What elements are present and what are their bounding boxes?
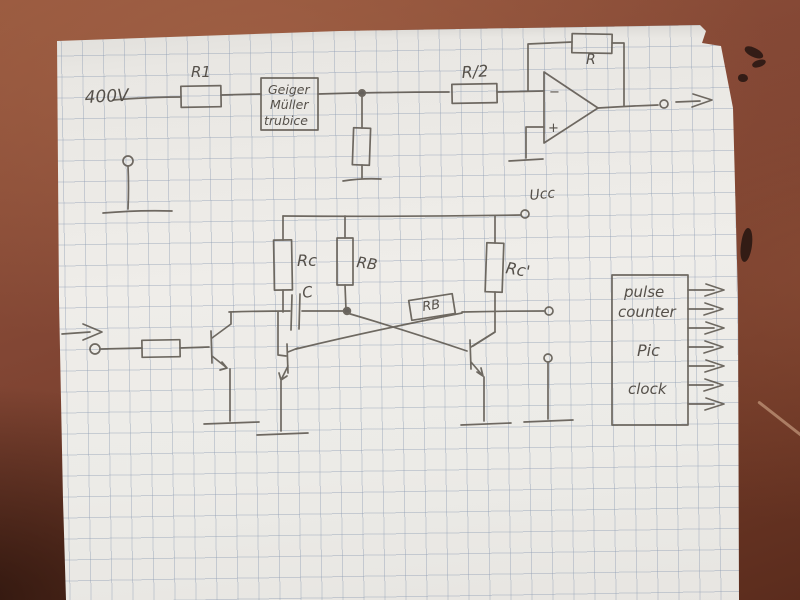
transistor-t2 bbox=[279, 344, 298, 380]
wire bbox=[278, 312, 286, 356]
terminal-circle bbox=[660, 100, 668, 108]
wire bbox=[497, 91, 544, 92]
photo-of-schematic: { "photo": { "table_color": "#7d4230", "… bbox=[0, 0, 800, 600]
counter-output-arrows bbox=[688, 284, 724, 410]
terminal-circle bbox=[521, 210, 529, 218]
resistor-rb-mid bbox=[337, 238, 353, 285]
wire bbox=[180, 347, 209, 348]
wire-ucc-rail bbox=[283, 215, 521, 216]
wire-cross-2 bbox=[296, 313, 462, 349]
transistor-t1 bbox=[211, 312, 231, 370]
wire-cross-1 bbox=[347, 313, 467, 351]
label-counter-3: Pic bbox=[637, 341, 660, 360]
wire-output-rail bbox=[462, 311, 544, 312]
label-counter-1: pulse bbox=[623, 283, 664, 301]
label-geiger-2: Müller bbox=[270, 97, 309, 112]
label-geiger-1: Geiger bbox=[268, 82, 310, 97]
terminal-circle bbox=[90, 344, 100, 354]
label-rc-right: Rc' bbox=[504, 258, 531, 281]
terminal-circle bbox=[544, 354, 552, 362]
label-rc-left: Rc bbox=[297, 251, 317, 270]
wire bbox=[318, 92, 449, 94]
wire-feedback bbox=[612, 43, 624, 106]
resistor-input bbox=[142, 340, 180, 358]
label-rb-coupling: RB bbox=[421, 297, 441, 315]
ground-symbol bbox=[204, 422, 259, 424]
wire bbox=[345, 285, 346, 310]
ground-symbol bbox=[257, 433, 308, 435]
wire-collector-rail bbox=[229, 311, 290, 312]
wire bbox=[101, 348, 142, 349]
label-r-half: R/2 bbox=[461, 61, 489, 82]
ground-symbol bbox=[524, 420, 573, 422]
opamp-plus-sign: + bbox=[548, 121, 559, 136]
ground-symbol bbox=[461, 423, 511, 425]
label-geiger-3: trubice bbox=[264, 113, 308, 128]
wire bbox=[221, 94, 261, 95]
label-counter-2: counter bbox=[618, 303, 677, 321]
capacitor-plates bbox=[291, 294, 300, 330]
label-r1: R1 bbox=[191, 63, 211, 81]
opamp-minus-sign: − bbox=[549, 85, 560, 100]
resistor-feedback bbox=[572, 34, 612, 54]
input-arrow bbox=[62, 324, 102, 340]
label-cap: C bbox=[301, 283, 314, 302]
resistor-divider bbox=[352, 128, 370, 166]
label-feedback-r: R bbox=[586, 52, 596, 68]
terminal-circle bbox=[123, 156, 133, 166]
label-rb-mid: RB bbox=[355, 253, 378, 274]
ground-symbol bbox=[343, 179, 381, 181]
label-counter-4: clock bbox=[628, 380, 668, 398]
wire bbox=[128, 166, 129, 209]
wire-opamp-plus bbox=[526, 127, 544, 158]
ground-symbol bbox=[509, 159, 543, 161]
resistor-r-half bbox=[452, 84, 497, 104]
wire-feedback bbox=[528, 42, 572, 91]
resistor-rc-right bbox=[485, 243, 504, 293]
circuit-drawing: 400V R1 Geiger Müller trubice R/2 R − + … bbox=[0, 0, 800, 600]
transistor-t3 bbox=[470, 332, 495, 376]
label-hv: 400V bbox=[84, 86, 130, 108]
resistor-rc-left bbox=[274, 240, 293, 290]
label-ucc: Ucc bbox=[529, 185, 556, 204]
ground-symbol bbox=[103, 211, 172, 213]
resistor-r1 bbox=[181, 86, 221, 108]
wire-output bbox=[598, 105, 658, 108]
output-arrow bbox=[676, 94, 712, 107]
terminal-circle bbox=[545, 307, 553, 315]
